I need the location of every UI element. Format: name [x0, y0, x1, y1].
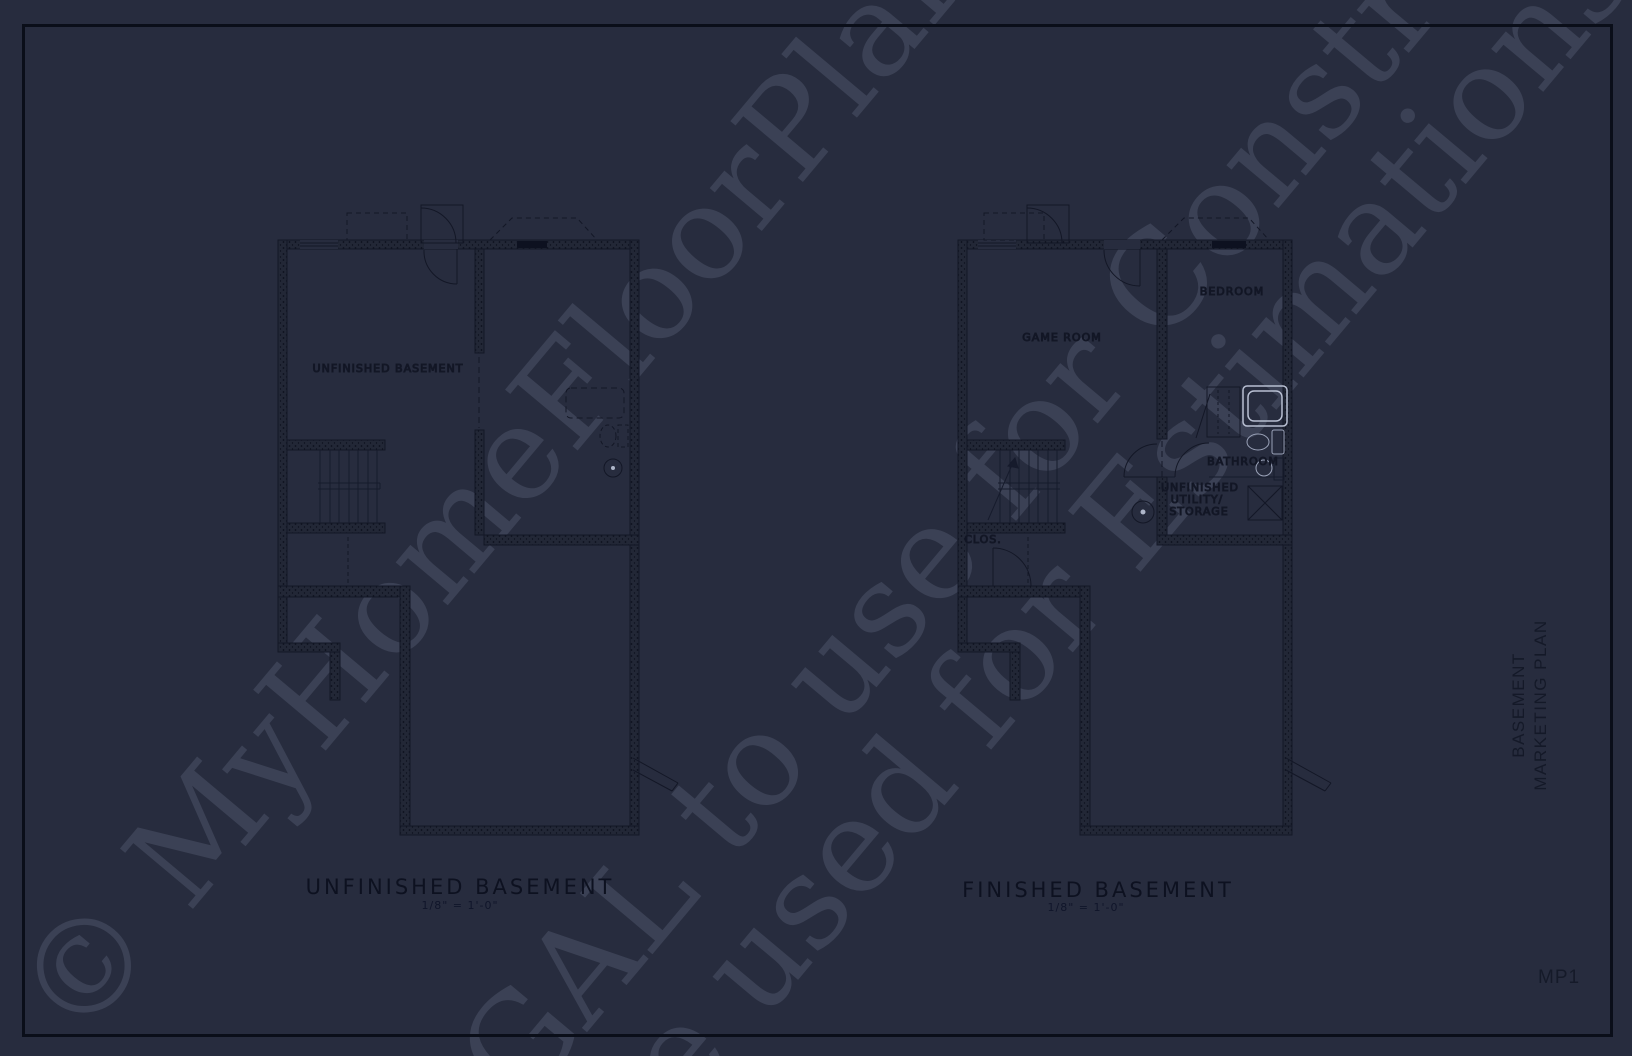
finished-basement-scale: 1/8" = 1'-0" [1047, 901, 1124, 914]
game-room-label: GAME ROOM [1022, 331, 1101, 344]
finished-basement-title: FINISHED BASEMENT [962, 878, 1234, 902]
sheet-number: MP1 [1538, 967, 1580, 989]
unfinished-basement-scale: 1/8" = 1'-0" [421, 899, 498, 912]
bathroom-label: BATHROOM [1207, 455, 1279, 468]
blueprint-sheet: © MyHomeFloorPlans.com ILLEGAL to use fo… [0, 0, 1632, 1056]
side-title-line1: BASEMENT [1508, 619, 1530, 790]
bedroom-label: BEDROOM [1200, 285, 1264, 298]
utility-label-line3: STORAGE [1169, 505, 1228, 518]
closet-label: CLOS. [964, 533, 1002, 546]
floor-plans-drawing: UNFINISHED BASEMENT [0, 0, 1632, 1056]
unfinished-basement-room-label: UNFINISHED BASEMENT [313, 362, 464, 375]
unfinished-basement-title: UNFINISHED BASEMENT [306, 875, 615, 899]
unfinished-plan: UNFINISHED BASEMENT [278, 205, 678, 835]
finished-plan: GAME ROOM BEDROOM BATHROOM UNFINISHED UT… [958, 205, 1331, 835]
side-title-line2: MARKETING PLAN [1530, 619, 1552, 790]
sheet-side-title: BASEMENT MARKETING PLAN [1508, 619, 1552, 790]
